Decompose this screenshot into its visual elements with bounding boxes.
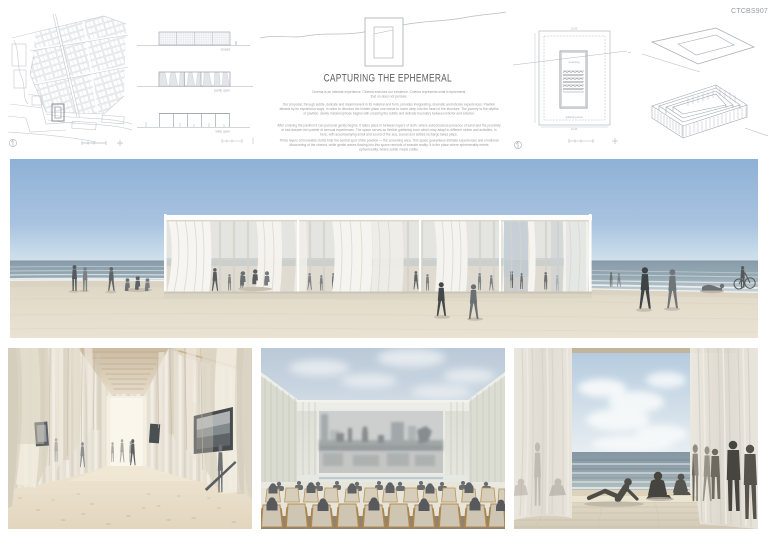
svg-text:of pavilion, slowly metamorpho: of pavilion, slowly metamorphose begins …: [303, 112, 474, 116]
svg-text:After entering the pavilion it: After entering the pavilion it can perso…: [277, 124, 501, 128]
svg-text:12.00: 12.00: [571, 26, 578, 30]
svg-text:closed: closed: [221, 48, 230, 52]
svg-text:here, with accompanying smell: here, with accompanying smell and sound …: [320, 133, 458, 137]
svg-text:of sea deepen rich palette of: of sea deepen rich palette of sensual ex…: [281, 128, 496, 132]
svg-text:partly open: partly open: [214, 89, 230, 93]
svg-text:Our proposal, through subtle,: Our proposal, through subtle, delicate a…: [283, 103, 496, 107]
svg-text:discovering of the cinema, whi: discovering of the cinema, while gentle …: [290, 143, 489, 147]
svg-text:attracts by its mysterious way: attracts by its mysterious ways, in orde…: [279, 107, 498, 111]
svg-text:that on does not perdure.: that on does not perdure.: [371, 95, 408, 99]
svg-text:12.00: 12.00: [571, 127, 578, 131]
svg-text:screening: screening: [568, 60, 580, 64]
svg-text:CAPTURING THE EPHEMERAL: CAPTURING THE EPHEMERAL: [324, 72, 453, 84]
svg-text:gathering area: gathering area: [566, 115, 583, 119]
svg-text:Cinema is an intimate experien: Cinema is an intimate experience. Cinema…: [312, 90, 466, 94]
svg-text:wide open: wide open: [215, 130, 230, 134]
svg-text:Three layers of moveable cloth: Three layers of moveable cloths hide the…: [280, 139, 499, 143]
svg-text:ephemerality, where subtle mee: ephemerality, where subtle meets subtle.: [359, 148, 419, 152]
